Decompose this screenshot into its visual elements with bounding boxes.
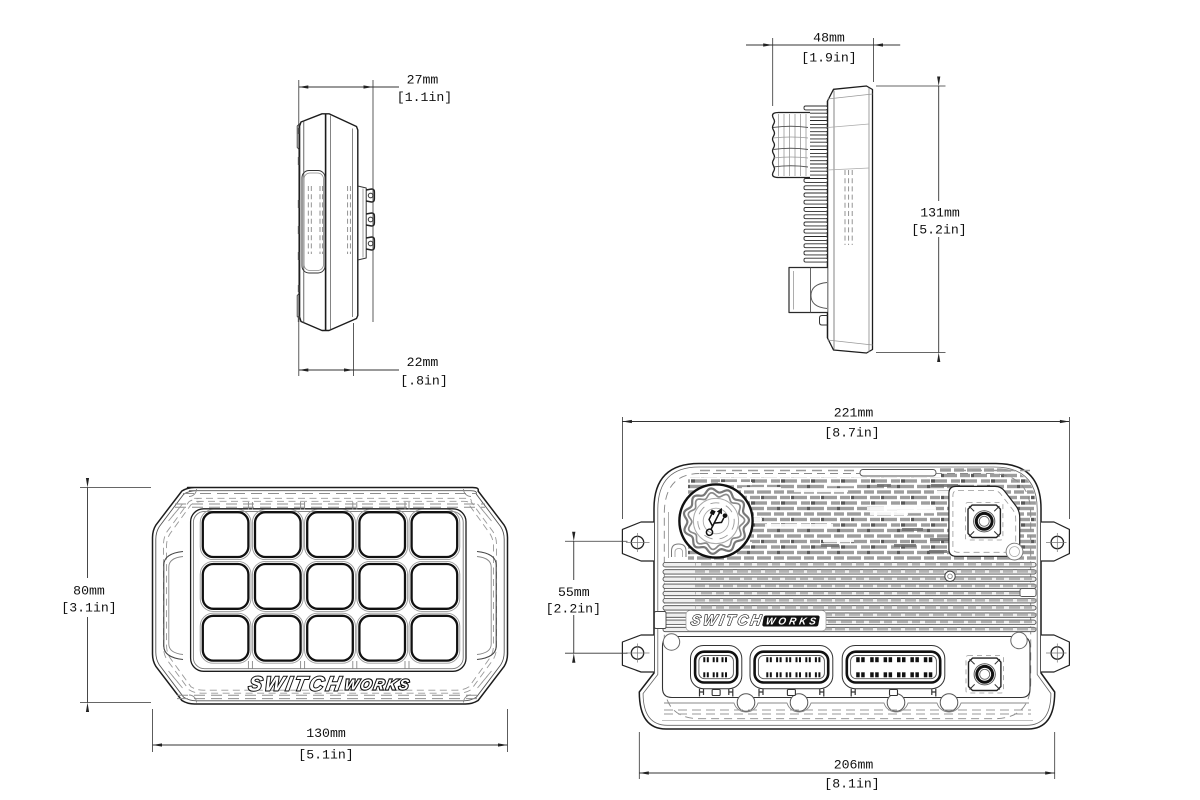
svg-text:[1.1in]: [1.1in] <box>397 90 452 105</box>
svg-text:[8.7in]: [8.7in] <box>824 426 879 441</box>
svg-text:206mm: 206mm <box>834 758 874 773</box>
svg-text:221mm: 221mm <box>834 406 874 421</box>
svg-text:[5.1in]: [5.1in] <box>298 748 353 763</box>
svg-text:[2.2in]: [2.2in] <box>546 602 601 617</box>
svg-text:27mm: 27mm <box>407 73 439 88</box>
svg-text:80mm: 80mm <box>73 584 105 599</box>
svg-text:[5.2in]: [5.2in] <box>911 223 966 238</box>
svg-text:[.8in]: [.8in] <box>400 374 447 389</box>
svg-text:WORKS: WORKS <box>765 616 817 627</box>
svg-text:[8.1in]: [8.1in] <box>824 777 879 792</box>
svg-text:131mm: 131mm <box>920 206 960 221</box>
svg-text:130mm: 130mm <box>306 726 346 741</box>
svg-text:48mm: 48mm <box>813 31 845 46</box>
svg-text:[1.9in]: [1.9in] <box>801 51 856 66</box>
svg-text:55mm: 55mm <box>558 585 590 600</box>
svg-text:WORKS: WORKS <box>343 678 410 694</box>
svg-text:22mm: 22mm <box>407 355 439 370</box>
svg-text:[3.1in]: [3.1in] <box>61 601 116 616</box>
